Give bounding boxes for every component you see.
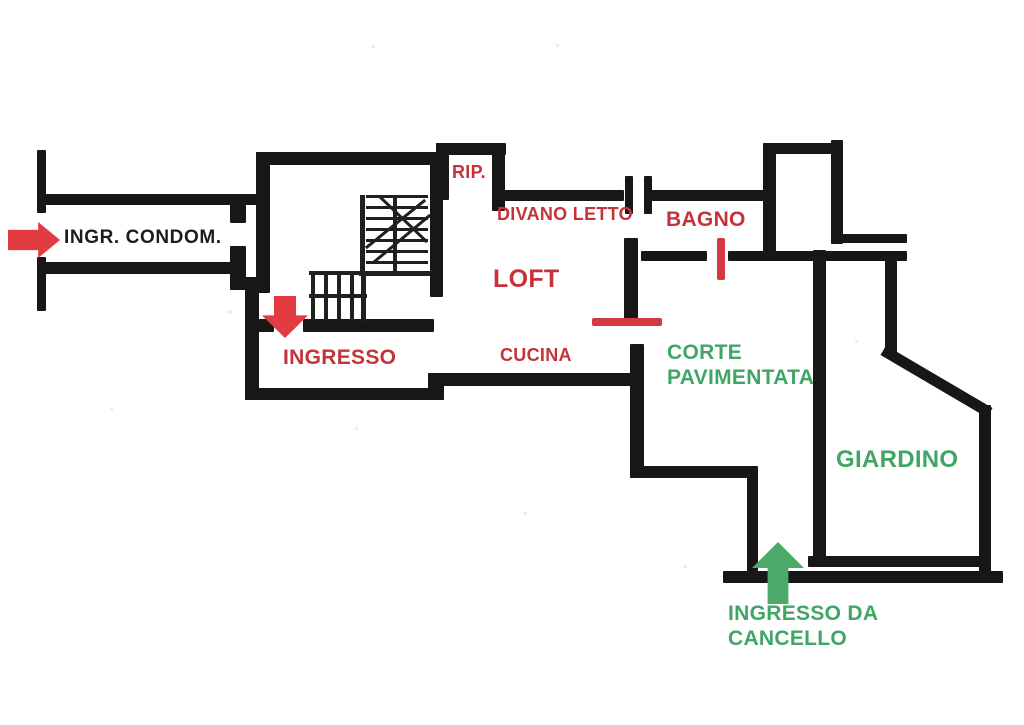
label-ingr-condom: INGR. CONDOM.	[64, 227, 222, 249]
label-loft: LOFT	[493, 265, 559, 295]
label-divano-letto: DIVANO LETTO	[497, 204, 633, 225]
door-marker-corte	[592, 318, 662, 326]
label-rip: RIP.	[452, 162, 486, 183]
floor-plan-canvas: INGR. CONDOM.RIP.DIVANO LETTOLOFTBAGNOIN…	[0, 0, 1024, 725]
label-cucina: CUCINA	[500, 345, 572, 366]
wall-giardino-diagonal	[888, 353, 985, 410]
label-ingresso-cancello: INGRESSO DA CANCELLO	[728, 602, 878, 652]
door-marker-bagno	[717, 238, 725, 280]
stair-direction-line-2	[374, 216, 429, 262]
label-bagno: BAGNO	[666, 208, 746, 233]
label-giardino: GIARDINO	[836, 446, 958, 474]
label-ingresso: INGRESSO	[283, 346, 396, 371]
stair-direction-line-1	[367, 201, 424, 247]
label-corte-pavimentata: CORTE PAVIMENTATA	[667, 341, 814, 391]
